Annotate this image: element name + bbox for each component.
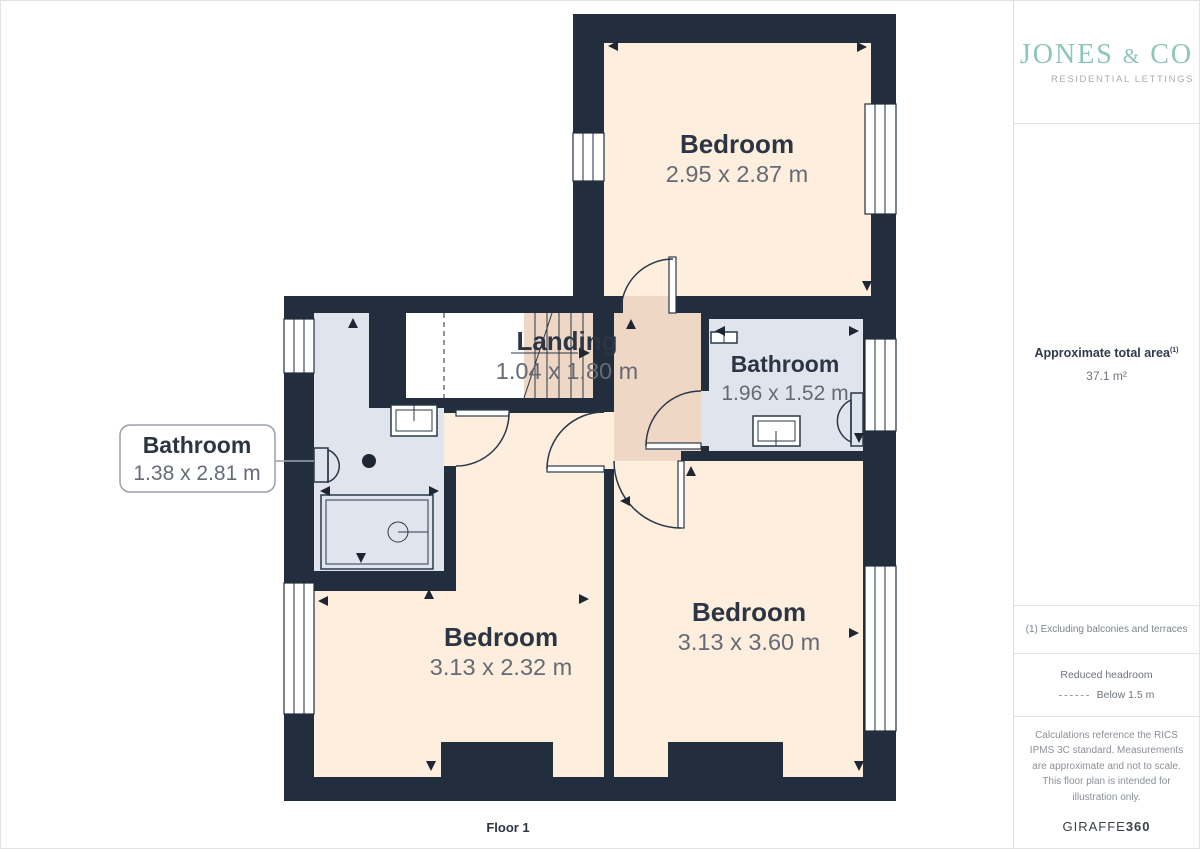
window [865,339,896,431]
room-label-bedroom-top: Bedroom [680,129,794,159]
window [865,566,896,731]
brand-subtitle: RESIDENTIAL LETTINGS [1014,74,1199,85]
floorplan-drawing: Bedroom 2.95 x 2.87 m Landing 1.04 x 1.8… [1,1,1013,849]
brand-logo-text: JONES & CO [1020,39,1193,71]
brand-logo: JONES & CO RESIDENTIAL LETTINGS [1014,1,1199,124]
sink-icon [391,405,437,436]
reduced-headroom-title: Reduced headroom [1060,669,1152,681]
total-area-footnote-ref: (1) [1170,347,1179,354]
footnote-text: (1) Excluding balconies and terraces [1026,624,1188,635]
reduced-headroom-legend: Reduced headroom Below 1.5 m [1014,654,1199,717]
total-area-value: 37.1 m² [1086,369,1127,383]
room-label-bedroom-right: Bedroom [692,597,806,627]
room-dims-bedroom-left: 3.13 x 2.32 m [430,654,572,680]
total-area-label-text: Approximate total area [1034,346,1169,360]
window [573,133,604,181]
reduced-headroom-value: Below 1.5 m [1097,689,1155,701]
disclaimer-text: Calculations reference the RICS IPMS 3C … [1027,728,1186,806]
total-area-label: Approximate total area(1) [1034,346,1178,360]
room-dims-bedroom-top: 2.95 x 2.87 m [666,161,808,187]
callout-room-dims: 1.38 x 2.81 m [133,462,260,485]
room-label-bedroom-left: Bedroom [444,622,558,652]
floor-label: Floor 1 [486,820,529,835]
callout-room-name: Bathroom [143,432,252,458]
giraffe360-word: GIRAFFE [1062,819,1125,834]
stairwell-void [406,313,524,398]
giraffe360-logo: GIRAFFE360 [1062,817,1150,837]
brand-word-2: CO [1150,39,1193,70]
giraffe360-suffix: 360 [1126,819,1151,834]
disclaimer-section: Calculations reference the RICS IPMS 3C … [1014,717,1199,848]
footnote-section: (1) Excluding balconies and terraces [1014,606,1199,654]
room-dims-bedroom-right: 3.13 x 3.60 m [678,629,820,655]
floorplan-page: Bedroom 2.95 x 2.87 m Landing 1.04 x 1.8… [0,0,1200,849]
room-dims-bathroom-right: 1.96 x 1.52 m [721,382,848,405]
dashed-line-icon [1059,695,1089,696]
sidebar: JONES & CO RESIDENTIAL LETTINGS Approxim… [1013,1,1199,848]
brand-ampersand: & [1123,44,1141,68]
room-label-bathroom-right: Bathroom [731,351,840,377]
room-bathroom-left [314,313,369,408]
brand-word-1: JONES [1020,39,1114,70]
sink-icon [753,416,800,446]
room-label-landing: Landing [516,326,617,356]
window [284,583,314,714]
window [865,104,896,214]
window [284,319,314,373]
room-dims-landing: 1.04 x 1.80 m [496,358,638,384]
total-area-section: Approximate total area(1) 37.1 m² [1014,124,1199,606]
